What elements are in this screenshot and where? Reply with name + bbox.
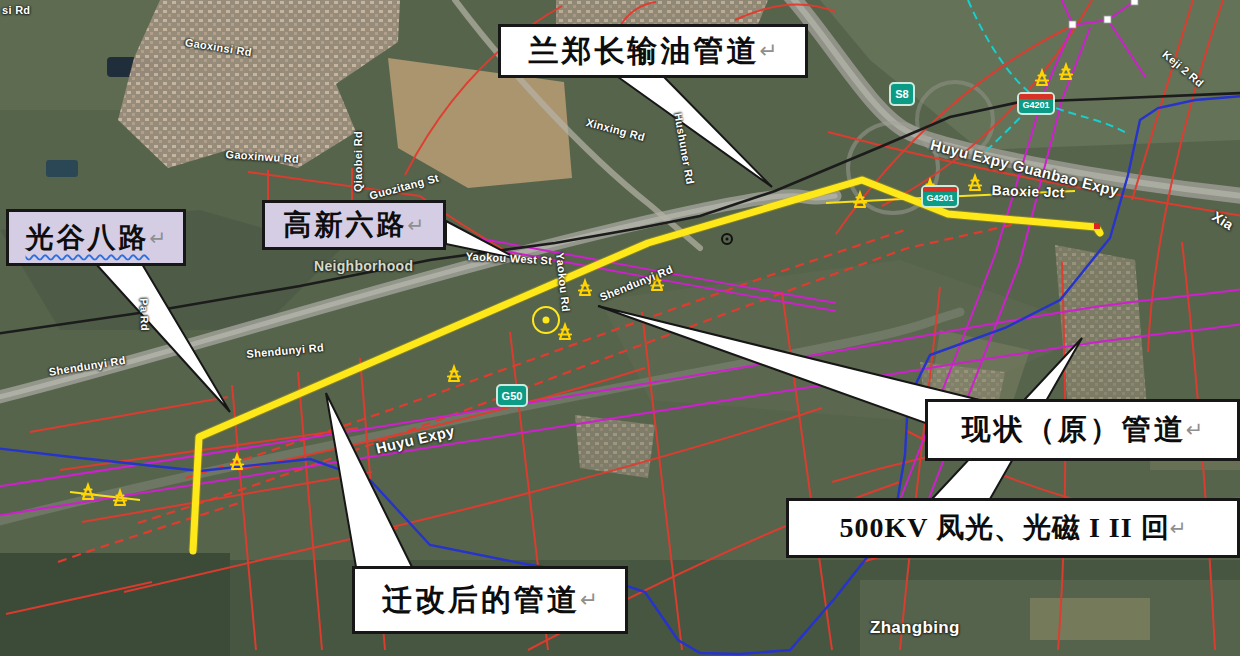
callout-text: 兰郑长输油管道 xyxy=(528,31,759,72)
return-mark-icon: ↵ xyxy=(580,587,598,613)
shield-g4201-south: G4201 xyxy=(921,185,959,208)
callout-lanzhengchang-pipeline: 兰郑长输油管道↵ xyxy=(498,24,808,78)
callout-text: 500KV 凤光、光磁 I II 回 xyxy=(839,509,1169,547)
shield-s8: S8 xyxy=(889,82,915,106)
callout-text: 迁改后的管道 xyxy=(382,580,580,621)
callout-gaoxin-6th-road: 高新六路↵ xyxy=(262,200,446,250)
callout-text: 光谷八路 xyxy=(26,219,150,257)
pipeline-relocation-map: S8 G4201 G4201 G50 si Rd Gaoxinsi Rd Gao… xyxy=(0,0,1240,656)
road-label-qiaobei: Qiaobei Rd xyxy=(352,131,364,192)
road-label-pa: Pa Rd xyxy=(138,298,151,331)
return-mark-icon: ↵ xyxy=(408,213,425,237)
callout-guanggu-8th-road: 光谷八路↵ xyxy=(6,209,186,266)
callout-relocated-pipeline: 迁改后的管道↵ xyxy=(352,566,628,634)
road-label-si-rd: si Rd xyxy=(2,4,30,16)
place-label-neighborhood: Neighborhood xyxy=(314,258,413,274)
return-mark-icon: ↵ xyxy=(759,38,777,64)
callout-text: 现状（原）管道 xyxy=(962,410,1186,450)
return-mark-icon: ↵ xyxy=(1186,418,1204,442)
shield-g50: G50 xyxy=(496,384,528,407)
callout-text: 高新六路 xyxy=(284,206,408,244)
place-label-zhangbing: Zhangbing xyxy=(870,618,960,638)
callout-500kv-powerlines: 500KV 凤光、光磁 I II 回↵ xyxy=(786,498,1240,558)
place-label-baoxie-jct: Baoxie Jct xyxy=(991,182,1065,201)
return-mark-icon: ↵ xyxy=(1170,516,1187,540)
callout-current-original-pipeline: 现状（原）管道↵ xyxy=(925,399,1240,461)
pipeline-endpoint-marker xyxy=(1094,223,1100,229)
shield-g4201-north: G4201 xyxy=(1017,92,1055,115)
return-mark-icon: ↵ xyxy=(150,226,167,250)
